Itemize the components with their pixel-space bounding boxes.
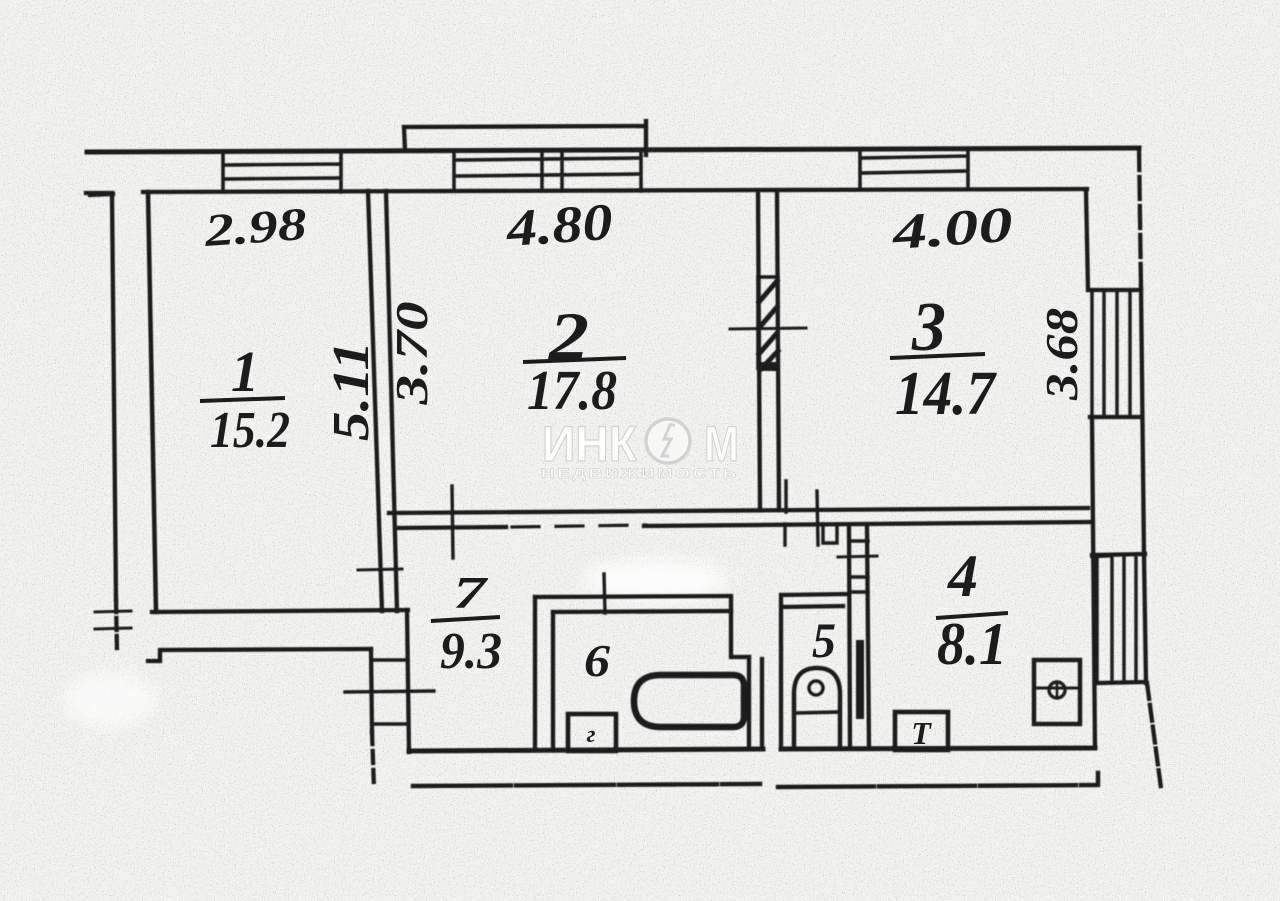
svg-text:4: 4 <box>947 543 978 609</box>
svg-text:17.8: 17.8 <box>527 360 617 422</box>
svg-text:8.1: 8.1 <box>937 611 1007 677</box>
svg-text:5.11: 5.11 <box>323 341 380 441</box>
svg-text:7: 7 <box>453 567 489 618</box>
svg-text:3.68: 3.68 <box>1036 308 1087 401</box>
svg-text:4.00: 4.00 <box>889 196 1014 260</box>
svg-text:3.70: 3.70 <box>386 302 437 406</box>
svg-text:Т: Т <box>911 715 932 751</box>
svg-text:15.2: 15.2 <box>210 402 290 459</box>
svg-text:4.80: 4.80 <box>504 194 615 258</box>
svg-text:9.3: 9.3 <box>440 623 502 680</box>
svg-text:1: 1 <box>231 339 259 404</box>
svg-text:14.7: 14.7 <box>895 360 998 428</box>
svg-text:6: 6 <box>584 635 610 686</box>
svg-text:г: г <box>587 722 596 748</box>
svg-text:М: М <box>704 416 739 472</box>
svg-text:ИНК: ИНК <box>542 416 637 472</box>
svg-text:5: 5 <box>812 612 836 668</box>
svg-text:НЕДВИЖИМОСТЬ: НЕДВИЖИМОСТЬ <box>541 465 739 481</box>
svg-text:2.98: 2.98 <box>202 198 309 256</box>
